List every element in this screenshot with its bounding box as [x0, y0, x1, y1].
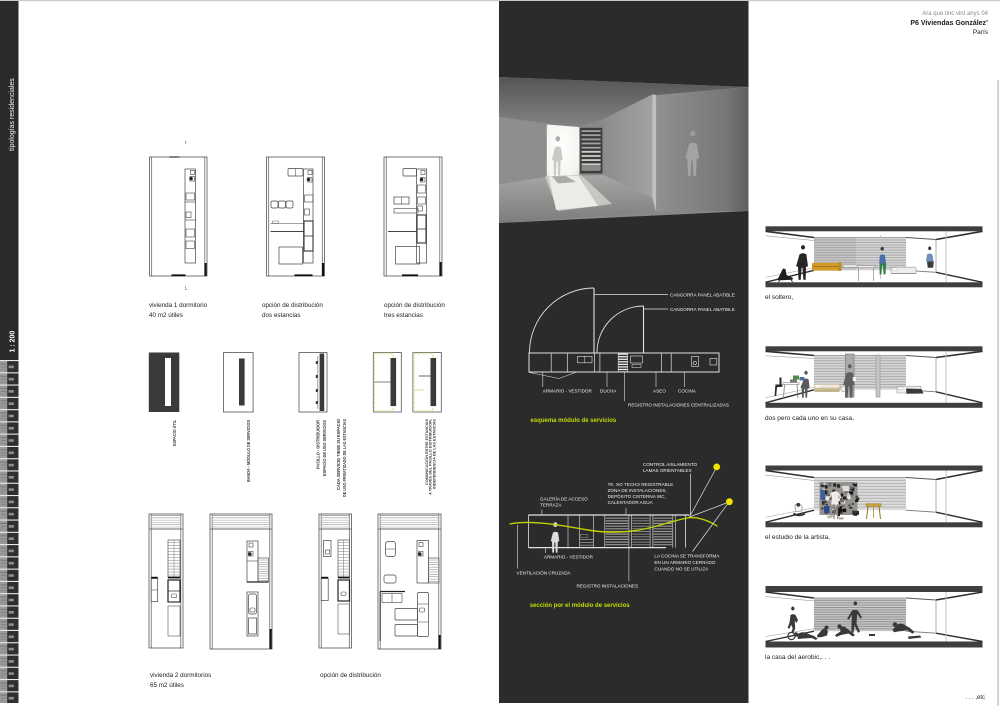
svg-text:París: París: [973, 29, 989, 36]
svg-text:el estudio de la artista,: el estudio de la artista,: [765, 534, 830, 541]
svg-text:CADA SERVICIO TIENE SU ESPACIO: CADA SERVICIO TIENE SU ESPACIO: [336, 418, 341, 490]
svg-text:COCINA: COCINA: [678, 389, 697, 394]
svg-text:TK. SO TECHO REGISTRABLE: TK. SO TECHO REGISTRABLE: [608, 482, 674, 487]
svg-text:opción de distribución: opción de distribución: [320, 672, 381, 679]
svg-text:vivienda 1 dormitorio: vivienda 1 dormitorio: [149, 302, 208, 309]
svg-text:CALENTADOR AGUA: CALENTADOR AGUA: [608, 500, 654, 505]
svg-text:Ara que tinc vint anys 04: Ara que tinc vint anys 04: [922, 11, 988, 17]
svg-text:el soltero,: el soltero,: [765, 294, 793, 301]
svg-text:ESPACIO ÚTIL: ESPACIO ÚTIL: [171, 420, 178, 446]
svg-text:CONTROL AISLAMIENTO: CONTROL AISLAMIENTO: [643, 462, 698, 467]
svg-text:tres estancias: tres estancias: [384, 312, 423, 319]
svg-text:DE USO PRIVATIZADO DE LAS ESTA: DE USO PRIVATIZADO DE LAS ESTANCIAS: [342, 419, 347, 497]
svg-text:PASILLO - DISTRIBUIDOR: PASILLO - DISTRIBUIDOR: [316, 420, 322, 469]
svg-text:LAMAS ORIENTABLES: LAMAS ORIENTABLES: [643, 468, 692, 473]
svg-text:GALERÍA DE ACCESO: GALERÍA DE ACCESO: [540, 496, 588, 502]
svg-text:LA COCINA SE TRANSFORMA: LA COCINA SE TRANSFORMA: [654, 554, 720, 559]
svg-text:VENTILACIÓN CRUZADA: VENTILACIÓN CRUZADA: [517, 570, 572, 576]
svg-text:ESPACIO DE USO SERVICIOS: ESPACIO DE USO SERVICIOS: [322, 419, 328, 476]
svg-text:opción de distribución: opción de distribución: [262, 302, 323, 309]
svg-text:REGISTRO INSTALACIONES: REGISTRO INSTALACIONES: [577, 584, 639, 589]
svg-text:sección por el módulo de servi: sección por el módulo de servicios: [530, 603, 631, 609]
svg-text:vivienda 2 dormitorios: vivienda 2 dormitorios: [150, 672, 211, 679]
svg-text:CANGORRA PANEL ABATIBLE: CANGORRA PANEL ABATIBLE: [670, 307, 735, 312]
svg-text:r: r: [185, 140, 187, 146]
svg-text:dos estancias: dos estancias: [262, 312, 301, 319]
svg-text:. . . ,etc: . . . ,etc: [965, 695, 985, 701]
svg-text:65 m2 útiles: 65 m2 útiles: [150, 682, 184, 689]
svg-text:ARMARIO - VESTIDOR: ARMARIO - VESTIDOR: [543, 389, 593, 394]
svg-text:DEPÓSITO CISTERNA WC,: DEPÓSITO CISTERNA WC,: [608, 493, 666, 499]
svg-text:ZONA DE INSTALACIONES,: ZONA DE INSTALACIONES,: [608, 488, 667, 493]
svg-text:la casa del aerobic,. . .: la casa del aerobic,. . .: [765, 654, 830, 661]
svg-text:esquema módulo de servicios: esquema módulo de servicios: [531, 418, 617, 424]
svg-text:dos pero cada uno en su casa,: dos pero cada uno en su casa,: [765, 415, 854, 422]
svg-text:INDEPENDENCIA DE LAS ESTANCIAS: INDEPENDENCIA DE LAS ESTANCIAS: [432, 418, 436, 489]
svg-text:tipologías residenciales: tipologías residenciales: [9, 78, 16, 151]
svg-text:ASEO: ASEO: [653, 389, 666, 394]
svg-text:1 : 200: 1 : 200: [10, 331, 17, 353]
svg-text:EN UN ARMARIO CERRADO: EN UN ARMARIO CERRADO: [654, 560, 715, 565]
svg-text:L: L: [185, 286, 188, 292]
svg-text:BANDA - MÓDULO DE SERVICIOS: BANDA - MÓDULO DE SERVICIOS: [244, 419, 252, 482]
svg-text:40 m2 útiles: 40 m2 útiles: [149, 312, 183, 319]
svg-text:opción de distribución: opción de distribución: [384, 302, 445, 309]
svg-text:DUCHA: DUCHA: [600, 389, 617, 394]
svg-text:CUANDO NO SE UTILIZA: CUANDO NO SE UTILIZA: [654, 567, 709, 572]
svg-text:P6 Viviendas González’: P6 Viviendas González’: [910, 20, 988, 27]
svg-text:CANGORRA PANEL ABATIBLE: CANGORRA PANEL ABATIBLE: [670, 293, 735, 298]
svg-text:ARMARIO - VESTIDOR: ARMARIO - VESTIDOR: [544, 555, 594, 560]
svg-text:TERRAZA: TERRAZA: [540, 503, 562, 508]
svg-text:REGISTRO INSTALACIONES CENTRAL: REGISTRO INSTALACIONES CENTRALIZADAS: [628, 403, 729, 408]
